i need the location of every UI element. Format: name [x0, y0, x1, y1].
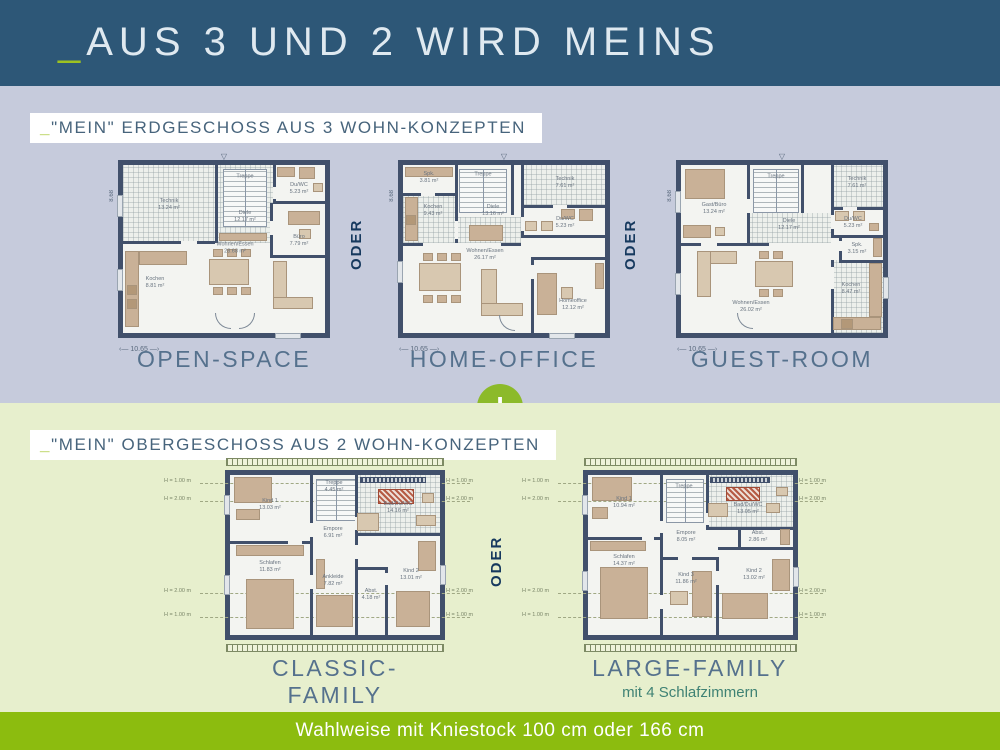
wall: [531, 257, 605, 260]
floor-plan-guest-room: ▽ 8.68 10.65: [676, 160, 888, 338]
furniture-sofa: [273, 297, 313, 309]
og-section: _"MEIN" OBERGESCHOSS AUS 2 WOHN-KONZEPTE…: [0, 403, 1000, 712]
furniture-desk: [288, 211, 320, 225]
room-label-empore: Empore6.91 m²: [323, 526, 342, 540]
height-mark: H = 1.00 m: [799, 478, 826, 484]
window: [883, 277, 889, 299]
furniture-desk: [537, 273, 557, 315]
furniture-bed: [396, 591, 430, 627]
furniture-appliance: [541, 221, 553, 231]
height-mark: H = 1.00 m: [446, 478, 473, 484]
furniture-appliance: [406, 215, 416, 225]
room-label-spk: Spk.3.15 m²: [848, 242, 867, 256]
window: [117, 269, 123, 291]
depth-dim: 8.68: [667, 190, 673, 202]
furniture-chair: [423, 295, 433, 303]
furniture-sink: [766, 503, 780, 513]
door-gap: [181, 241, 197, 244]
room-label-bad: Bad/Du/WC13.05 m²: [733, 502, 762, 516]
floor-plan-large-family: H = 1.00 m H = 2.00 m H = 2.00 m H = 1.0…: [583, 470, 798, 640]
floor-plan-classic-family: H = 1.00 m H = 2.00 m H = 2.00 m H = 1.0…: [225, 470, 445, 640]
depth-dim: 8.68: [109, 190, 115, 202]
furniture-chair: [773, 251, 783, 259]
ruler-strip: [584, 644, 797, 652]
eg-label-text: "MEIN" ERDGESCHOSS AUS 3 WOHN-KONZEPTEN: [51, 118, 526, 137]
roof-marker-icon: ▽: [501, 152, 507, 161]
floor-plan-open-space: ▽ 8.68 10.65: [118, 160, 330, 338]
plan-name-home-office: HOME-OFFICE: [398, 346, 610, 373]
title-text: AUS 3 UND 2 WIRD MEINS: [86, 20, 720, 64]
height-mark: H = 1.00 m: [522, 612, 549, 618]
furniture-kitchen-counter: [139, 251, 187, 265]
room-label-schlafen: Schlafen14.37 m²: [613, 554, 635, 568]
door-gap: [843, 207, 857, 210]
height-mark: H = 2.00 m: [446, 496, 473, 502]
furniture-chair: [759, 251, 769, 259]
wall: [403, 243, 423, 246]
door-arc: [215, 313, 231, 329]
depth-dim: 8.68: [389, 190, 395, 202]
door-gap: [660, 595, 663, 609]
furniture-desk: [772, 559, 790, 591]
wall: [123, 241, 215, 244]
height-mark: H = 2.00 m: [522, 496, 549, 502]
oder-label: ODER: [622, 210, 639, 270]
wall: [273, 201, 325, 204]
plan-name-open-space: OPEN-SPACE: [118, 346, 330, 373]
room-label-kind1: Kind 113.03 m²: [259, 498, 281, 512]
eg-label-box: _"MEIN" ERDGESCHOSS AUS 3 WOHN-KONZEPTEN: [30, 113, 542, 143]
floor-plan-home-office: ▽ 8.68 10.65: [398, 160, 610, 338]
knee-wall-cabinet: [710, 477, 770, 483]
door-gap: [355, 545, 358, 559]
oder-label: ODER: [348, 210, 365, 270]
furniture-wardrobe: [236, 545, 304, 556]
door-gap: [747, 199, 750, 213]
furniture-bed: [600, 567, 648, 619]
room-label-du-wc: Du/WC5.23 m²: [556, 216, 575, 230]
height-mark: H = 2.00 m: [164, 588, 191, 594]
window: [224, 575, 230, 595]
window: [793, 567, 799, 587]
furniture-chair: [227, 287, 237, 295]
room-label-bad: Bad/Du/WC14.16 m²: [383, 501, 412, 515]
oder-label: ODER: [488, 527, 505, 587]
room-label-abst: Abst.2.86 m²: [749, 530, 768, 544]
furniture-kitchen-counter: [869, 263, 882, 317]
room-label-technik: Technik7.61 m²: [556, 176, 575, 190]
plan-name-large-family: LARGE-FAMILY: [570, 655, 810, 682]
footer-bar: Wahlweise mit Kniestock 100 cm oder 166 …: [0, 712, 1000, 750]
furniture-chair: [437, 295, 447, 303]
room-label-abst: Abst.4.18 m²: [362, 588, 381, 602]
door-gap: [273, 187, 276, 199]
ruler-strip: [226, 458, 444, 466]
furniture-chair: [773, 289, 783, 297]
wall: [660, 537, 663, 635]
furniture-appliance: [127, 299, 137, 309]
door-gap: [660, 521, 663, 533]
height-mark: H = 1.00 m: [164, 478, 191, 484]
door-gap: [455, 221, 458, 239]
wall: [831, 207, 883, 210]
room-label-diele: Diele12.17 m²: [234, 210, 256, 224]
knee-wall-cabinet: [360, 477, 426, 483]
wall: [270, 255, 325, 258]
room-label-kochen: Kochen8.81 m²: [146, 276, 165, 290]
furniture-sideboard: [469, 225, 503, 241]
plan-name-guest-room: GUEST-ROOM: [676, 346, 888, 373]
furniture-shower: [708, 503, 728, 517]
door-gap: [521, 217, 524, 231]
furniture-bed: [246, 579, 294, 629]
wall: [355, 533, 440, 536]
wall: [747, 243, 769, 246]
furniture-chair: [451, 295, 461, 303]
furniture-chair: [715, 227, 725, 236]
furniture-desk: [592, 507, 608, 519]
furniture-desk: [418, 541, 436, 571]
furniture-wardrobe: [316, 595, 353, 627]
furniture-shelf: [873, 238, 882, 257]
furniture-bed: [685, 169, 725, 199]
bath-hatch-area: [726, 487, 760, 501]
room-label-kind1: Kind 110.94 m²: [613, 496, 635, 510]
furniture-sink: [313, 183, 323, 192]
window: [117, 195, 123, 217]
door-gap: [642, 537, 654, 540]
og-label-accent: _: [40, 435, 51, 454]
height-mark: H = 1.00 m: [164, 612, 191, 618]
window: [582, 571, 588, 591]
room-label-treppe: Treppe: [675, 484, 692, 491]
wall: [521, 235, 605, 238]
door-gap: [716, 571, 719, 585]
furniture-cabinet: [277, 167, 295, 177]
wall: [738, 527, 741, 547]
furniture-sideboard: [219, 233, 267, 241]
furniture-chair: [437, 253, 447, 261]
room-label-kochen: Kochen8.47 m²: [842, 282, 861, 296]
furniture-sink: [416, 515, 436, 526]
door-arc: [239, 313, 255, 329]
door-gap: [531, 265, 534, 279]
door-arc: [499, 315, 515, 331]
plan-name-classic-family: CLASSIC-FAMILY: [225, 655, 445, 709]
furniture-chair: [213, 287, 223, 295]
window: [440, 565, 446, 585]
height-mark: H = 2.00 m: [799, 588, 826, 594]
furniture-chair: [423, 253, 433, 261]
furniture-dining-table: [209, 259, 249, 285]
height-mark: H = 1.00 m: [522, 478, 549, 484]
door-arc: [737, 313, 753, 329]
room-label-du-wc: Du/WC5.23 m²: [290, 182, 309, 196]
door-gap: [421, 193, 435, 196]
kniestock-line: [558, 593, 823, 594]
furniture-wc: [776, 487, 788, 496]
furniture-cabinet: [579, 209, 593, 221]
window: [224, 495, 230, 515]
furniture-chair: [759, 289, 769, 297]
furniture-shelf: [595, 263, 604, 289]
height-mark: H = 1.00 m: [799, 612, 826, 618]
ruler-strip: [584, 458, 797, 466]
room-label-homeoffice: Homeoffice12.12 m²: [559, 298, 587, 312]
door-gap: [310, 523, 313, 537]
window: [549, 333, 575, 339]
furniture-appliance: [525, 221, 537, 231]
door-gap: [831, 215, 834, 229]
window: [675, 273, 681, 295]
room-label-schlafen: Schlafen11.83 m²: [259, 560, 280, 574]
kniestock-line: [558, 617, 823, 618]
room-label-wohnen: Wohnen/Essen28.68 m²: [216, 241, 253, 255]
room-label-du-wc: Du/WC5.23 m²: [844, 216, 863, 230]
window: [275, 333, 301, 339]
plan-subtitle-large-family: mit 4 Schlafzimmern: [570, 684, 810, 701]
furniture-shelf: [780, 529, 790, 545]
furniture-desk: [236, 509, 260, 520]
og-label-box: _"MEIN" OBERGESCHOSS AUS 2 WOHN-KONZEPTE…: [30, 430, 556, 460]
furniture-chair: [451, 253, 461, 261]
eg-label-accent: _: [40, 118, 51, 137]
room-label-treppe: Treppe: [474, 172, 491, 179]
room-label-gast: Gast/Büro13.24 m²: [702, 202, 727, 216]
wall: [718, 547, 793, 550]
furniture-dining-table: [755, 261, 793, 287]
room-label-technik: Technik7.61 m²: [848, 176, 867, 190]
furniture-cabinet: [299, 167, 315, 179]
room-label-diele: Diele13.16 m²: [482, 204, 504, 218]
furniture-appliance: [127, 285, 137, 295]
furniture-sofa: [697, 251, 711, 297]
room-label-technik: Technik13.24 m²: [158, 198, 180, 212]
furniture-desk: [683, 225, 711, 238]
height-mark: H = 2.00 m: [446, 588, 473, 594]
roof-marker-icon: ▽: [779, 152, 785, 161]
room-label-wohnen: Wohnen/Essen26.17 m²: [466, 248, 503, 262]
height-mark: H = 2.00 m: [164, 496, 191, 502]
door-gap: [270, 221, 273, 235]
room-label-treppe: Treppe: [767, 174, 784, 181]
furniture-appliance: [841, 319, 853, 329]
furniture-wc: [422, 493, 434, 503]
door-gap: [701, 243, 717, 246]
room-label-wohnen: Wohnen/Essen26.02 m²: [732, 300, 769, 314]
door-gap: [831, 267, 834, 289]
furniture-cabinet: [869, 223, 879, 231]
room-label-treppe: Treppe: [236, 174, 253, 181]
height-mark: H = 1.00 m: [446, 612, 473, 618]
height-mark: H = 2.00 m: [799, 496, 826, 502]
room-label-kochen: Kochen9.43 m²: [424, 204, 443, 218]
furniture-shower: [357, 513, 379, 531]
door-gap: [839, 241, 842, 251]
door-gap: [385, 573, 388, 585]
furniture-bed: [722, 593, 768, 619]
room-label-diele: Diele12.17 m²: [778, 218, 800, 232]
eg-section: _"MEIN" ERDGESCHOSS AUS 3 WOHN-KONZEPTEN…: [0, 86, 1000, 403]
ruler-strip: [226, 644, 444, 652]
wall: [215, 165, 218, 243]
roof-marker-icon: ▽: [221, 152, 227, 161]
page: _AUS 3 UND 2 WIRD MEINS _"MEIN" ERDGESCH…: [0, 0, 1000, 750]
page-title: _AUS 3 UND 2 WIRD MEINS: [58, 20, 721, 65]
wall: [501, 243, 521, 246]
door-gap: [678, 557, 692, 560]
title-accent: _: [58, 20, 86, 64]
room-label-empore: Empore8.05 m²: [676, 530, 695, 544]
header-bar: _AUS 3 UND 2 WIRD MEINS: [0, 0, 1000, 86]
furniture-chair: [241, 287, 251, 295]
door-gap: [553, 205, 567, 208]
height-mark: H = 2.00 m: [522, 588, 549, 594]
furniture-wardrobe: [590, 541, 646, 551]
room-label-buero: Büro7.79 m²: [290, 234, 309, 248]
furniture-dining-table: [419, 263, 461, 291]
door-gap: [288, 541, 302, 544]
room-label-kind2: Kind 213.02 m²: [743, 568, 765, 582]
furniture-rug: [670, 591, 688, 605]
room-label-treppe: Treppe4.45 m²: [325, 480, 344, 494]
room-label-ankleide: Ankleide7.82 m²: [322, 574, 343, 588]
wall: [358, 567, 385, 570]
wall: [716, 557, 719, 635]
og-label-text: "MEIN" OBERGESCHOSS AUS 2 WOHN-KONZEPTEN: [51, 435, 540, 454]
wall: [801, 165, 804, 213]
room-label-kind3: Kind 311.86 m²: [675, 572, 696, 586]
window: [397, 261, 403, 283]
room-label-spk: Spk.3.81 m²: [420, 171, 439, 185]
footer-text: Wahlweise mit Kniestock 100 cm oder 166 …: [296, 720, 705, 742]
wall: [511, 165, 514, 215]
room-label-kind2: Kind 213.01 m²: [400, 568, 422, 582]
window: [582, 495, 588, 515]
door-gap: [310, 575, 313, 589]
window: [675, 191, 681, 213]
